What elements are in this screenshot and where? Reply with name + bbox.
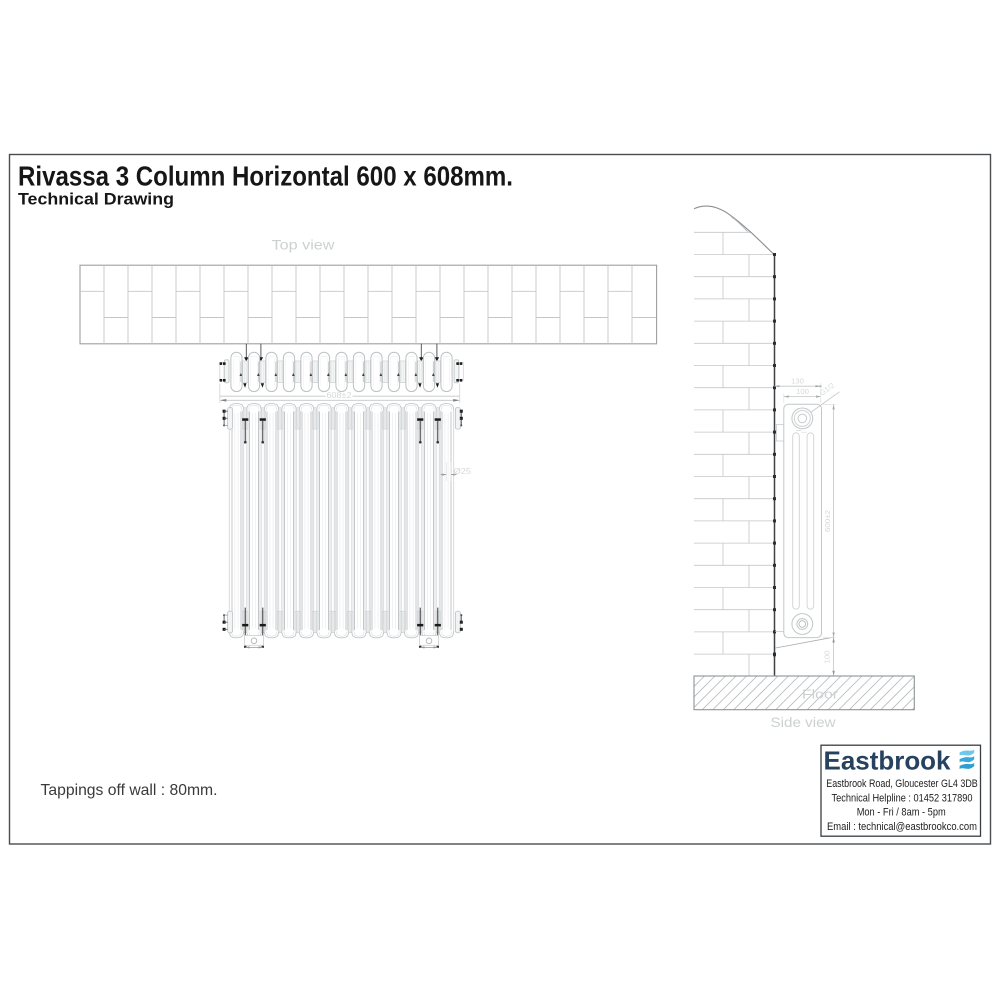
svg-text:608±2: 608±2	[327, 391, 353, 400]
svg-text:Technical Helpline : 01452 317: Technical Helpline : 01452 317890	[832, 792, 973, 804]
svg-text:Side view: Side view	[771, 715, 836, 730]
svg-text:Email : technical@eastbrookco.: Email : technical@eastbrookco.com	[827, 821, 977, 833]
svg-text:100: 100	[825, 650, 832, 663]
svg-text:130: 130	[791, 377, 804, 386]
svg-text:Eastbrook: Eastbrook	[824, 746, 952, 776]
svg-text:100: 100	[796, 387, 809, 396]
svg-text:Floor: Floor	[802, 688, 838, 702]
svg-text:Ø25: Ø25	[454, 466, 472, 476]
svg-text:Technical Drawing: Technical Drawing	[18, 190, 174, 209]
svg-text:Eastbrook Road, Gloucester GL4: Eastbrook Road, Gloucester GL4 3DB	[826, 778, 978, 790]
svg-text:Top view: Top view	[272, 238, 335, 253]
svg-text:Mon - Fri / 8am - 5pm: Mon - Fri / 8am - 5pm	[857, 806, 946, 818]
svg-text:Tappings off wall : 80mm.: Tappings off wall : 80mm.	[41, 782, 218, 799]
svg-text:Rivassa 3 Column Horizontal 60: Rivassa 3 Column Horizontal 600 x 608mm.	[18, 161, 513, 192]
svg-text:600±2: 600±2	[823, 510, 832, 532]
